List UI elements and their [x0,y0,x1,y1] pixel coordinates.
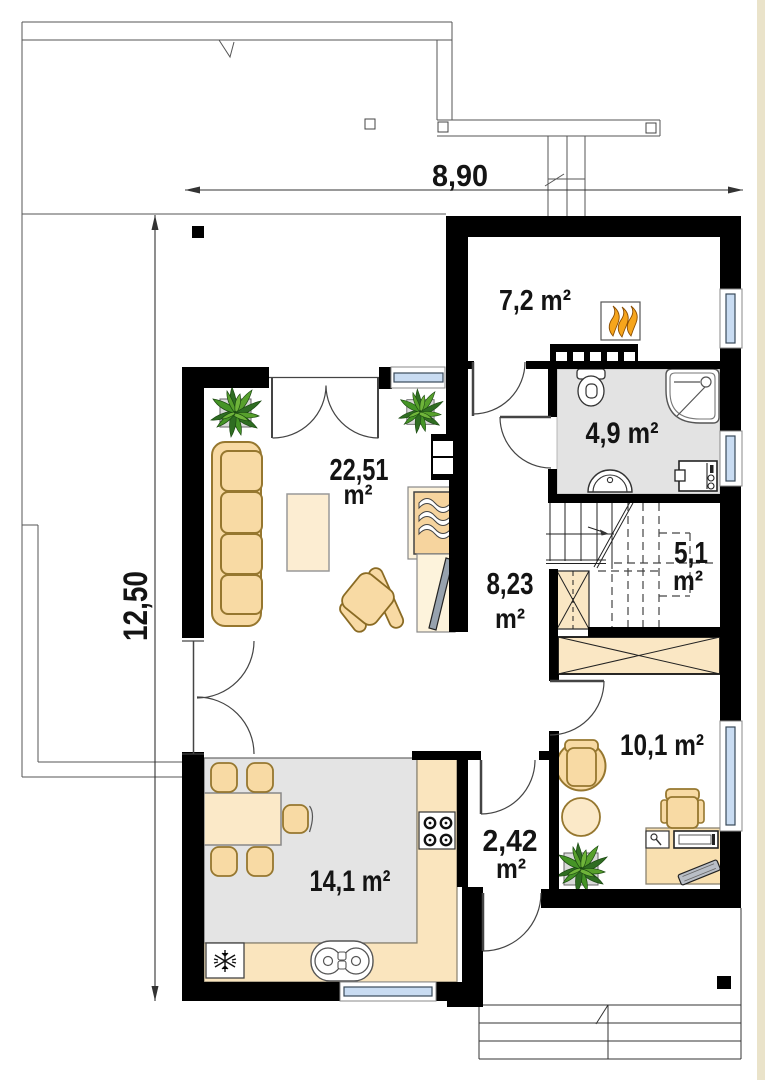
svg-text:12,50: 12,50 [117,571,155,641]
svg-text:7,2 m²: 7,2 m² [499,285,571,317]
svg-text:m²: m² [344,479,373,510]
svg-text:8,90: 8,90 [432,158,488,193]
svg-text:m²: m² [496,853,526,884]
svg-text:m²: m² [673,565,703,596]
svg-text:8,23: 8,23 [487,566,534,601]
svg-text:4,9 m²: 4,9 m² [586,417,659,450]
svg-text:14,1 m²: 14,1 m² [310,865,391,898]
svg-text:m²: m² [495,603,525,634]
svg-text:10,1 m²: 10,1 m² [620,729,704,762]
